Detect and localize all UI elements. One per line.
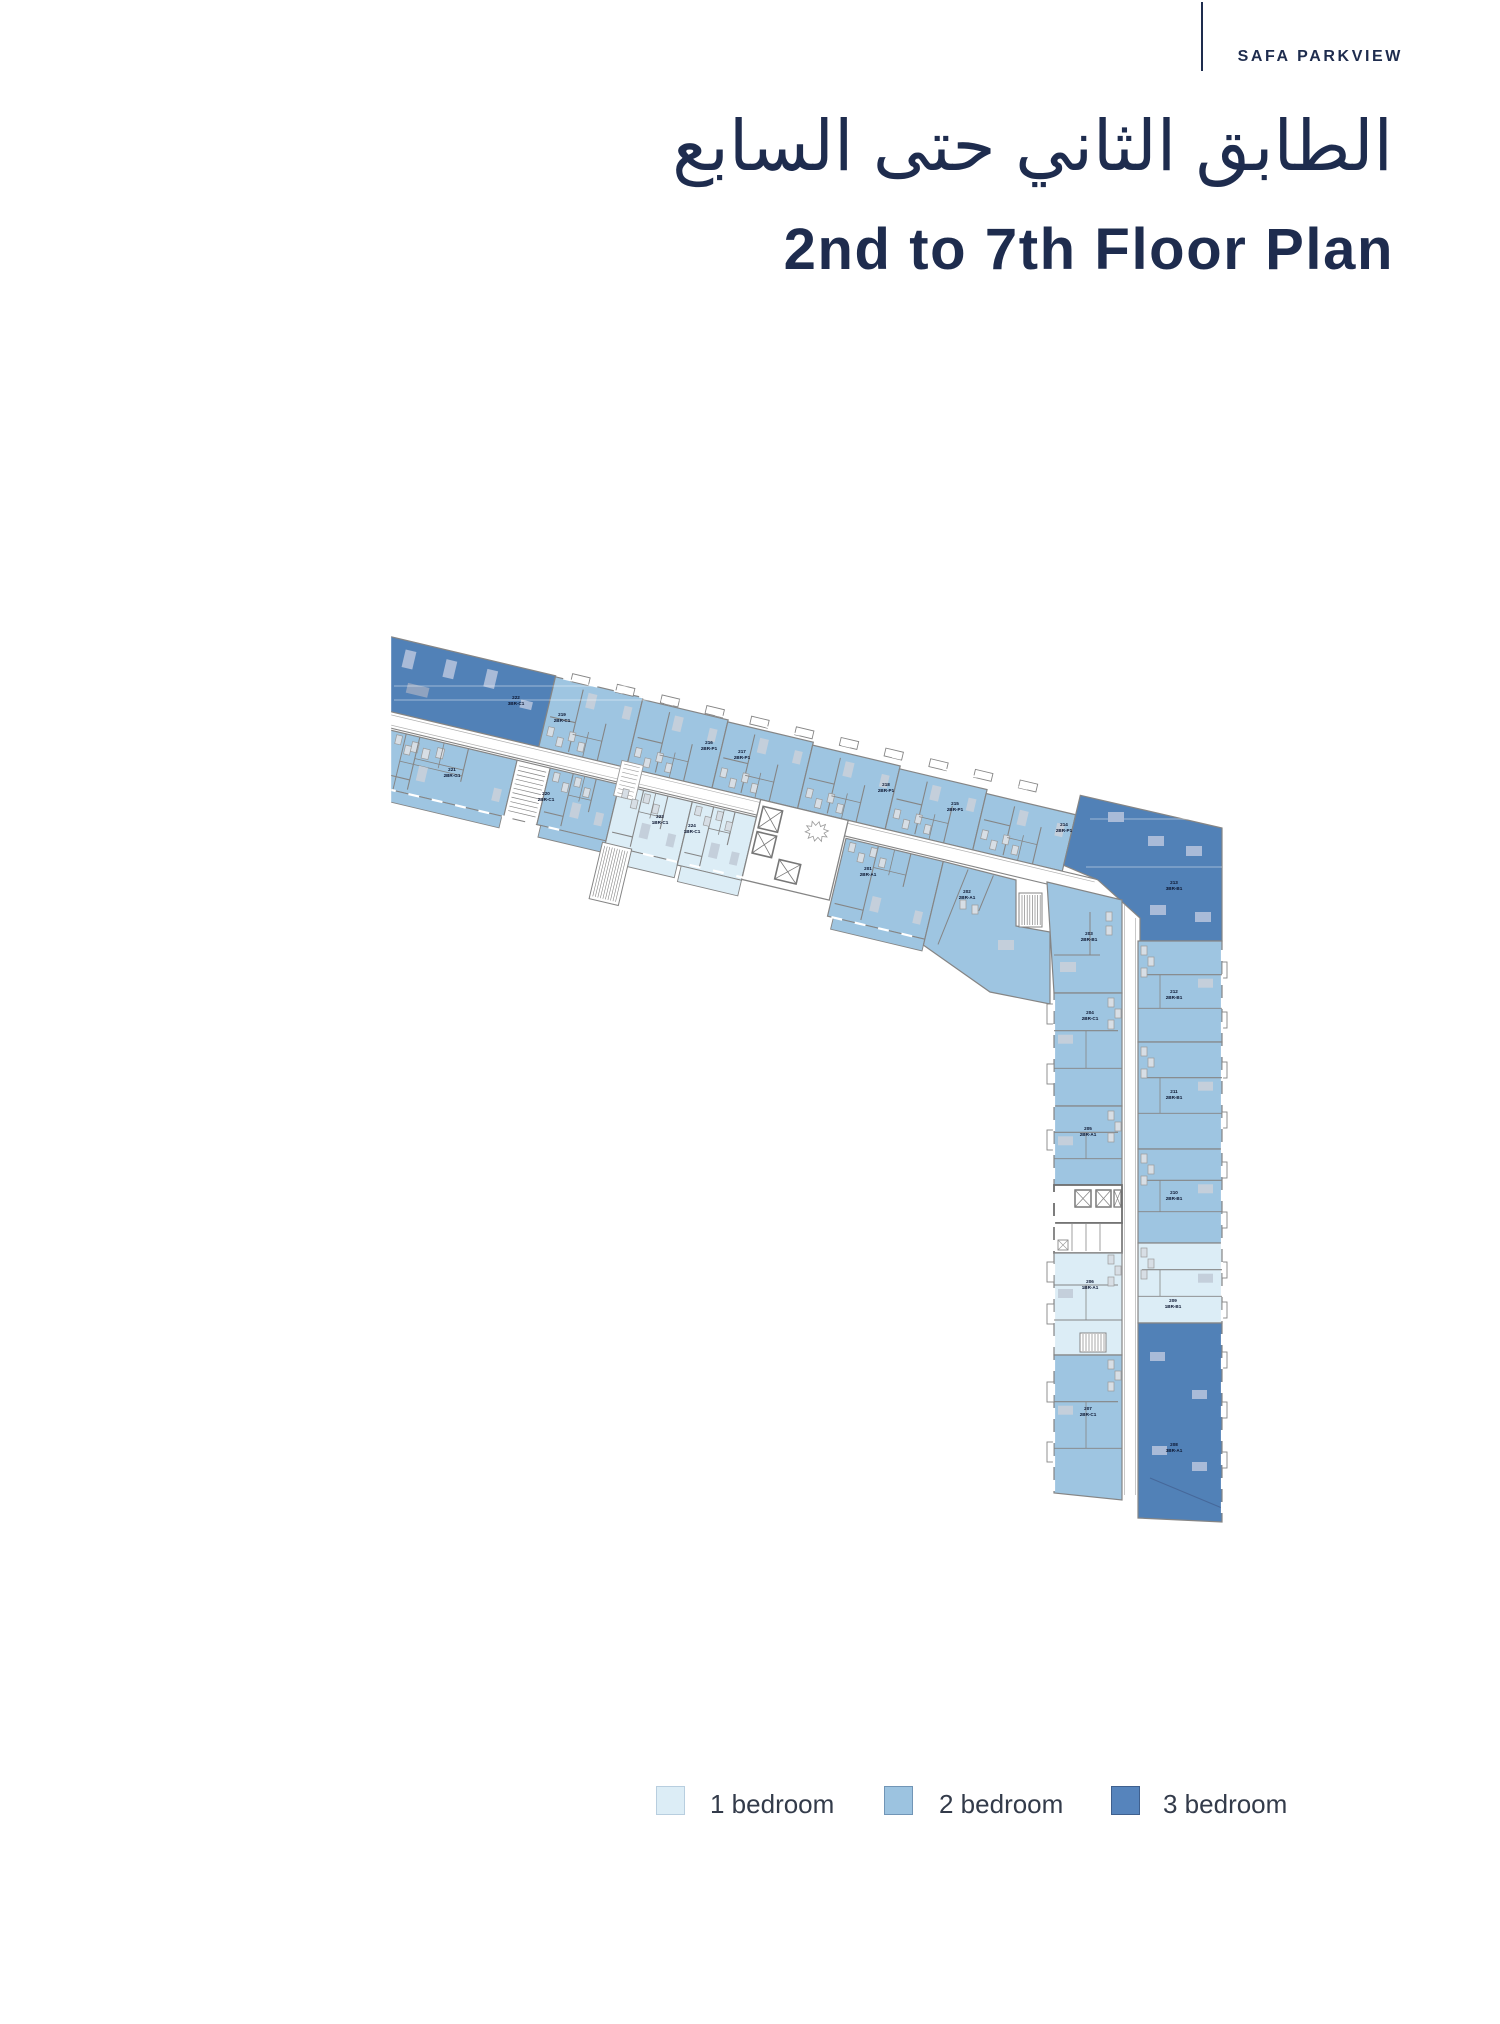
svg-text:2BR-P1: 2BR-P1 — [734, 755, 751, 760]
svg-text:2BR-G1: 2BR-G1 — [444, 773, 461, 778]
svg-text:2BR-P1: 2BR-P1 — [878, 788, 895, 793]
svg-text:207: 207 — [1084, 1406, 1092, 1411]
svg-text:215: 215 — [951, 801, 959, 806]
svg-text:201: 201 — [864, 866, 872, 871]
svg-text:2BR-C1: 2BR-C1 — [1080, 1412, 1097, 1417]
svg-text:218: 218 — [882, 782, 890, 787]
svg-text:2BR-C1: 2BR-C1 — [1082, 1016, 1099, 1021]
svg-text:2BR-A1: 2BR-A1 — [1080, 1132, 1097, 1137]
svg-text:2BR-P1: 2BR-P1 — [1056, 828, 1073, 833]
svg-text:220: 220 — [542, 791, 550, 796]
svg-text:204: 204 — [1086, 1010, 1094, 1015]
svg-text:2BR-P1: 2BR-P1 — [947, 807, 964, 812]
svg-text:3BR-A1: 3BR-A1 — [1166, 1448, 1183, 1453]
svg-text:213: 213 — [1170, 880, 1178, 885]
svg-text:217: 217 — [738, 749, 746, 754]
svg-text:209: 209 — [1169, 1298, 1177, 1303]
svg-text:223: 223 — [656, 814, 664, 819]
svg-text:1BR-C1: 1BR-C1 — [684, 829, 701, 834]
svg-text:2BR-B1: 2BR-B1 — [1166, 1196, 1183, 1201]
svg-text:203: 203 — [1085, 931, 1093, 936]
svg-text:205: 205 — [1084, 1126, 1092, 1131]
svg-text:2BR-A1: 2BR-A1 — [860, 872, 877, 877]
svg-text:1BR-B1: 1BR-B1 — [1165, 1304, 1182, 1309]
svg-text:2BR-B1: 2BR-B1 — [1081, 937, 1098, 942]
svg-text:212: 212 — [1170, 989, 1178, 994]
svg-text:206: 206 — [1086, 1279, 1094, 1284]
svg-text:1BR-A1: 1BR-A1 — [1082, 1285, 1099, 1290]
svg-text:2BR-P1: 2BR-P1 — [701, 746, 718, 751]
svg-text:2BR-C1: 2BR-C1 — [538, 797, 555, 802]
svg-text:208: 208 — [1170, 1442, 1178, 1447]
svg-text:2BR-A1: 2BR-A1 — [959, 895, 976, 900]
svg-text:210: 210 — [1170, 1190, 1178, 1195]
svg-text:202: 202 — [963, 889, 971, 894]
svg-text:216: 216 — [705, 740, 713, 745]
svg-text:222: 222 — [512, 695, 520, 700]
svg-text:3BR-C1: 3BR-C1 — [508, 701, 525, 706]
svg-text:214: 214 — [1060, 822, 1068, 827]
svg-text:2BR-B1: 2BR-B1 — [1166, 995, 1183, 1000]
svg-text:1BR-C1: 1BR-C1 — [652, 820, 669, 825]
svg-text:211: 211 — [1170, 1089, 1178, 1094]
svg-text:221: 221 — [448, 767, 456, 772]
svg-text:2BR-B1: 2BR-B1 — [1166, 1095, 1183, 1100]
svg-text:3BR-B1: 3BR-B1 — [1166, 886, 1183, 891]
svg-text:224: 224 — [688, 823, 696, 828]
svg-text:2BR-C1: 2BR-C1 — [554, 718, 571, 723]
svg-text:219: 219 — [558, 712, 566, 717]
